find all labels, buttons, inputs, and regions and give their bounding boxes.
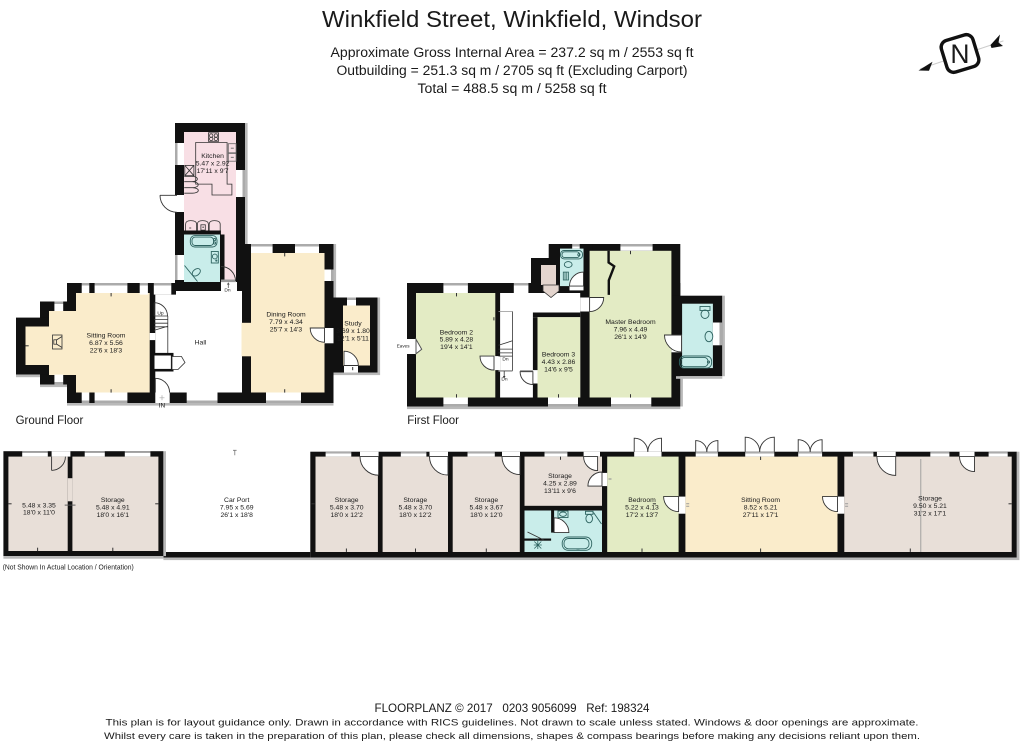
svg-text:This plan is for layout guidan: This plan is for layout guidance only. D…	[106, 718, 919, 728]
svg-text:Storage: Storage	[101, 497, 125, 504]
svg-text:Outbuilding = 251.3 sq m / 270: Outbuilding = 251.3 sq m / 2705 sq ft (E…	[337, 63, 688, 78]
svg-text:Whilst every care is taken in: Whilst every care is taken in the prepar…	[104, 731, 920, 741]
svg-text:Sitting Room: Sitting Room	[87, 333, 126, 340]
svg-text:18'0 x 12'0: 18'0 x 12'0	[470, 512, 503, 519]
svg-text:Car Port: Car Port	[224, 497, 249, 504]
svg-text:Hall: Hall	[195, 340, 207, 347]
svg-text:N: N	[950, 39, 969, 69]
svg-text:26'1 x 18'8: 26'1 x 18'8	[220, 512, 253, 519]
svg-text:Master Bedroom: Master Bedroom	[605, 319, 656, 326]
svg-text:22'6 x 18'3: 22'6 x 18'3	[90, 347, 123, 354]
svg-text:7.96 x 4.49: 7.96 x 4.49	[614, 326, 648, 333]
svg-text:Storage: Storage	[335, 497, 359, 504]
svg-text:12'1 x 5'11: 12'1 x 5'11	[337, 336, 369, 343]
svg-text:5.48 x 4.91: 5.48 x 4.91	[96, 505, 130, 512]
svg-text:Winkfield Street, Winkfield, W: Winkfield Street, Winkfield, Windsor	[322, 6, 702, 32]
svg-text:17'2 x 13'7: 17'2 x 13'7	[626, 512, 659, 519]
svg-text:31'2 x 17'1: 31'2 x 17'1	[914, 511, 947, 518]
svg-text:14'6 x 9'5: 14'6 x 9'5	[544, 367, 573, 374]
svg-text:Study: Study	[344, 321, 362, 328]
svg-text:6.87 x 5.56: 6.87 x 5.56	[89, 340, 123, 347]
svg-text:18'0 x 12'2: 18'0 x 12'2	[330, 512, 363, 519]
svg-text:3.69 x 1.80: 3.69 x 1.80	[336, 328, 370, 335]
svg-text:Kitchen: Kitchen	[201, 153, 224, 160]
svg-text:18'0 x 11'0: 18'0 x 11'0	[23, 510, 55, 517]
svg-text:5.48 x 3.70: 5.48 x 3.70	[398, 505, 432, 512]
svg-text:Total = 488.5 sq m / 5258 sq f: Total = 488.5 sq m / 5258 sq ft	[418, 81, 607, 96]
svg-text:19'4 x 14'1: 19'4 x 14'1	[440, 344, 473, 351]
svg-text:IN: IN	[159, 403, 166, 410]
svg-text:18'0 x 12'2: 18'0 x 12'2	[399, 512, 432, 519]
svg-text:5.47 x 2.92: 5.47 x 2.92	[196, 161, 230, 168]
svg-text:25'7 x 14'3: 25'7 x 14'3	[270, 327, 303, 334]
svg-text:FLOORPLANZ © 2017 0203 90560: FLOORPLANZ © 2017 0203 9056099 Ref: 1983…	[375, 701, 650, 715]
svg-text:First Floor: First Floor	[407, 415, 459, 427]
svg-text:5.48 x 3.67: 5.48 x 3.67	[469, 505, 503, 512]
svg-text:27'11 x 17'1: 27'11 x 17'1	[743, 512, 779, 519]
svg-text:9.50 x 5.21: 9.50 x 5.21	[913, 503, 947, 510]
svg-text:4.25 x 2.89: 4.25 x 2.89	[543, 480, 577, 487]
svg-text:Eaves: Eaves	[397, 344, 410, 349]
svg-text:5.48 x 3.35: 5.48 x 3.35	[22, 502, 56, 509]
svg-text:Dn: Dn	[501, 377, 508, 383]
svg-text:Storage: Storage	[474, 497, 498, 504]
svg-text:Bedroom 2: Bedroom 2	[440, 329, 473, 336]
svg-text:Storage: Storage	[918, 496, 942, 503]
svg-text:Dn: Dn	[502, 357, 509, 363]
svg-text:Up: Up	[157, 310, 164, 316]
svg-text:4.43 x 2.86: 4.43 x 2.86	[542, 359, 576, 366]
svg-text:Storage: Storage	[403, 497, 427, 504]
svg-text:5.22 x 4.13: 5.22 x 4.13	[625, 505, 659, 512]
svg-text:Bedroom: Bedroom	[628, 497, 656, 504]
svg-text:13'11 x 9'6: 13'11 x 9'6	[544, 488, 576, 495]
svg-text:8.52 x 5.21: 8.52 x 5.21	[744, 505, 778, 512]
svg-text:Sitting Room: Sitting Room	[741, 497, 780, 504]
svg-text:18'0 x 16'1: 18'0 x 16'1	[97, 512, 130, 519]
svg-text:5.48 x 3.70: 5.48 x 3.70	[330, 505, 364, 512]
svg-text:(Not Shown In Actual Location: (Not Shown In Actual Location / Orientat…	[3, 563, 134, 572]
svg-text:Approximate Gross Internal Are: Approximate Gross Internal Area = 237.2 …	[331, 45, 694, 60]
svg-text:Bedroom 3: Bedroom 3	[542, 352, 575, 359]
svg-text:5.89 x 4.28: 5.89 x 4.28	[440, 337, 474, 344]
svg-text:Dn: Dn	[224, 288, 231, 294]
svg-text:7.95 x 5.69: 7.95 x 5.69	[220, 505, 254, 512]
svg-text:17'11 x 9'7: 17'11 x 9'7	[197, 168, 229, 175]
svg-text:Storage: Storage	[548, 473, 572, 480]
svg-text:26'1 x 14'9: 26'1 x 14'9	[614, 334, 647, 341]
svg-text:Ground Floor: Ground Floor	[16, 415, 84, 427]
svg-text:7.79 x 4.34: 7.79 x 4.34	[269, 319, 303, 326]
svg-text:Dining Room: Dining Room	[266, 312, 306, 319]
